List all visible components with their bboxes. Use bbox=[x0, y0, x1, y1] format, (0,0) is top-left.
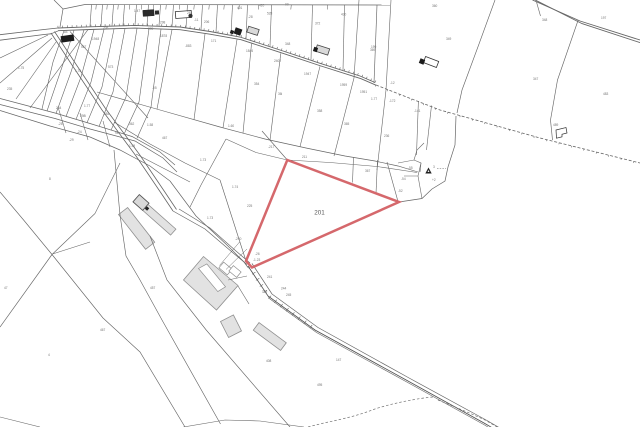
svg-text:1.74: 1.74 bbox=[232, 185, 238, 189]
svg-text:+2: +2 bbox=[432, 178, 436, 182]
svg-text:1846: 1846 bbox=[246, 49, 253, 53]
svg-text:171: 171 bbox=[211, 39, 217, 43]
svg-text:-05: -05 bbox=[152, 86, 157, 90]
svg-text:201: 201 bbox=[314, 209, 325, 216]
svg-text:347: 347 bbox=[533, 77, 539, 81]
svg-text:-12: -12 bbox=[390, 81, 395, 85]
svg-text:36i: 36i bbox=[278, 92, 283, 96]
svg-text:430: 430 bbox=[341, 13, 347, 17]
svg-text:1951: 1951 bbox=[360, 90, 367, 94]
svg-text:467: 467 bbox=[162, 136, 168, 140]
svg-text:-883: -883 bbox=[185, 44, 192, 48]
svg-text:408: 408 bbox=[266, 359, 272, 363]
svg-text:299: 299 bbox=[148, 27, 154, 31]
svg-text:47: 47 bbox=[4, 286, 8, 290]
svg-text:401: 401 bbox=[237, 6, 243, 10]
svg-text:372: 372 bbox=[315, 22, 321, 26]
svg-text:1.76: 1.76 bbox=[75, 69, 81, 73]
svg-text:-1.23: -1.23 bbox=[253, 258, 260, 262]
svg-text:1.60: 1.60 bbox=[228, 124, 234, 128]
svg-text:199: 199 bbox=[371, 45, 377, 49]
svg-text:235: 235 bbox=[7, 87, 13, 91]
svg-text:-28: -28 bbox=[248, 15, 253, 19]
svg-text:1.77: 1.77 bbox=[371, 97, 377, 101]
svg-text:8: 8 bbox=[49, 177, 51, 181]
svg-text:147: 147 bbox=[336, 358, 342, 362]
svg-text:298i: 298i bbox=[80, 114, 86, 118]
svg-text:567: 567 bbox=[81, 45, 87, 49]
svg-text:234: 234 bbox=[56, 106, 62, 110]
svg-text:483: 483 bbox=[603, 92, 609, 96]
svg-text:584: 584 bbox=[104, 112, 110, 116]
svg-text:1959: 1959 bbox=[340, 83, 347, 87]
svg-text:1.73: 1.73 bbox=[200, 158, 206, 162]
svg-text:-29: -29 bbox=[69, 138, 74, 142]
svg-text:-141: -141 bbox=[414, 109, 421, 113]
svg-text:-11: -11 bbox=[194, 18, 199, 22]
svg-text:298: 298 bbox=[160, 21, 166, 25]
svg-text:211: 211 bbox=[302, 155, 307, 159]
svg-text:98: 98 bbox=[115, 131, 119, 135]
svg-text:495: 495 bbox=[317, 383, 323, 387]
svg-text:244: 244 bbox=[281, 287, 287, 291]
svg-text:243: 243 bbox=[262, 290, 268, 294]
svg-text:1.58: 1.58 bbox=[147, 123, 153, 127]
svg-text:4: 4 bbox=[48, 353, 50, 357]
svg-text:-240: -240 bbox=[235, 237, 242, 241]
svg-text:349: 349 bbox=[446, 37, 452, 41]
svg-text:241: 241 bbox=[267, 275, 273, 279]
svg-text:362: 362 bbox=[129, 122, 135, 126]
svg-text:348: 348 bbox=[285, 42, 291, 46]
svg-text:489: 489 bbox=[553, 123, 559, 127]
svg-text:365: 365 bbox=[344, 122, 350, 126]
svg-text:1948: 1948 bbox=[92, 37, 99, 41]
svg-text:-54: -54 bbox=[401, 177, 406, 181]
svg-text:225: 225 bbox=[247, 204, 253, 208]
svg-text:348: 348 bbox=[542, 18, 548, 22]
svg-text:1.75: 1.75 bbox=[18, 66, 24, 70]
svg-text:467: 467 bbox=[100, 328, 106, 332]
svg-text:1.47: 1.47 bbox=[134, 9, 140, 13]
svg-text:-00: -00 bbox=[284, 3, 289, 7]
svg-text:1.59: 1.59 bbox=[129, 144, 135, 148]
svg-text:1.73: 1.73 bbox=[207, 216, 213, 220]
svg-text:360: 360 bbox=[432, 4, 438, 8]
svg-text:206: 206 bbox=[204, 20, 210, 24]
svg-text:281: 281 bbox=[187, 11, 193, 15]
svg-text:-55: -55 bbox=[408, 166, 413, 170]
svg-text:-26: -26 bbox=[255, 252, 260, 256]
svg-text:205: 205 bbox=[103, 26, 109, 30]
svg-text:420: 420 bbox=[259, 4, 265, 8]
svg-text:-24: -24 bbox=[77, 130, 82, 134]
svg-text:573: 573 bbox=[108, 65, 114, 69]
svg-text:1.77: 1.77 bbox=[84, 104, 90, 108]
svg-text:367: 367 bbox=[365, 169, 371, 173]
svg-text:245: 245 bbox=[286, 293, 292, 297]
svg-text:-52: -52 bbox=[398, 189, 403, 193]
svg-text:-28: -28 bbox=[58, 122, 63, 126]
svg-text:-217: -217 bbox=[268, 145, 275, 149]
svg-text:197: 197 bbox=[601, 16, 607, 20]
svg-text:236: 236 bbox=[384, 134, 390, 138]
svg-text:457: 457 bbox=[150, 286, 156, 290]
svg-text:1878: 1878 bbox=[160, 34, 167, 38]
svg-text:-172: -172 bbox=[389, 99, 396, 103]
svg-text:84: 84 bbox=[64, 30, 68, 34]
svg-text:2402: 2402 bbox=[274, 59, 281, 63]
svg-text:528: 528 bbox=[267, 12, 273, 16]
svg-text:354: 354 bbox=[254, 82, 260, 86]
svg-text:1947: 1947 bbox=[304, 72, 311, 76]
svg-text:3: 3 bbox=[433, 165, 435, 169]
svg-text:358: 358 bbox=[317, 109, 323, 113]
